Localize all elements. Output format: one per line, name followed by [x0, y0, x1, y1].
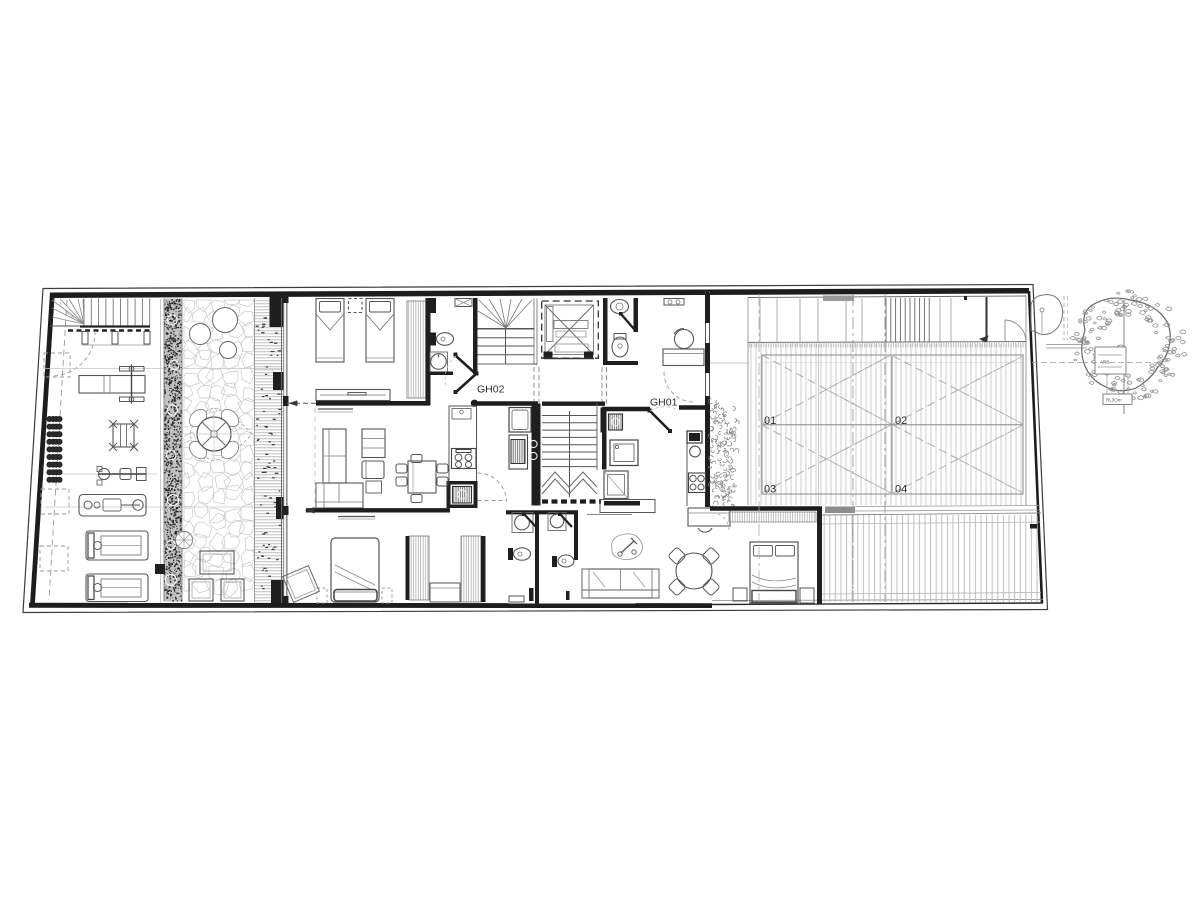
svg-text:ARB: ARB [1100, 360, 1109, 365]
svg-text:03: 03 [764, 484, 776, 496]
svg-text:GH02: GH02 [477, 384, 505, 396]
svg-text:01: 01 [764, 415, 776, 427]
svg-text:02: 02 [895, 415, 907, 427]
svg-text:04: 04 [895, 484, 907, 496]
svg-text:RL3Om: RL3Om [1106, 398, 1122, 403]
